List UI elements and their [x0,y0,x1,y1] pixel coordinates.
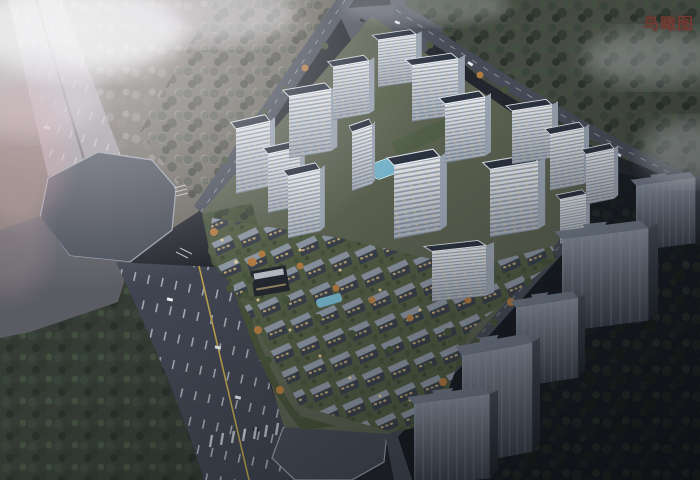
aerial-rendering-image: 鸟瞰图 [0,0,700,480]
atmosphere-fog [0,0,700,480]
rendering-canvas [0,0,700,480]
view-title-label: 鸟瞰图 [643,10,694,34]
